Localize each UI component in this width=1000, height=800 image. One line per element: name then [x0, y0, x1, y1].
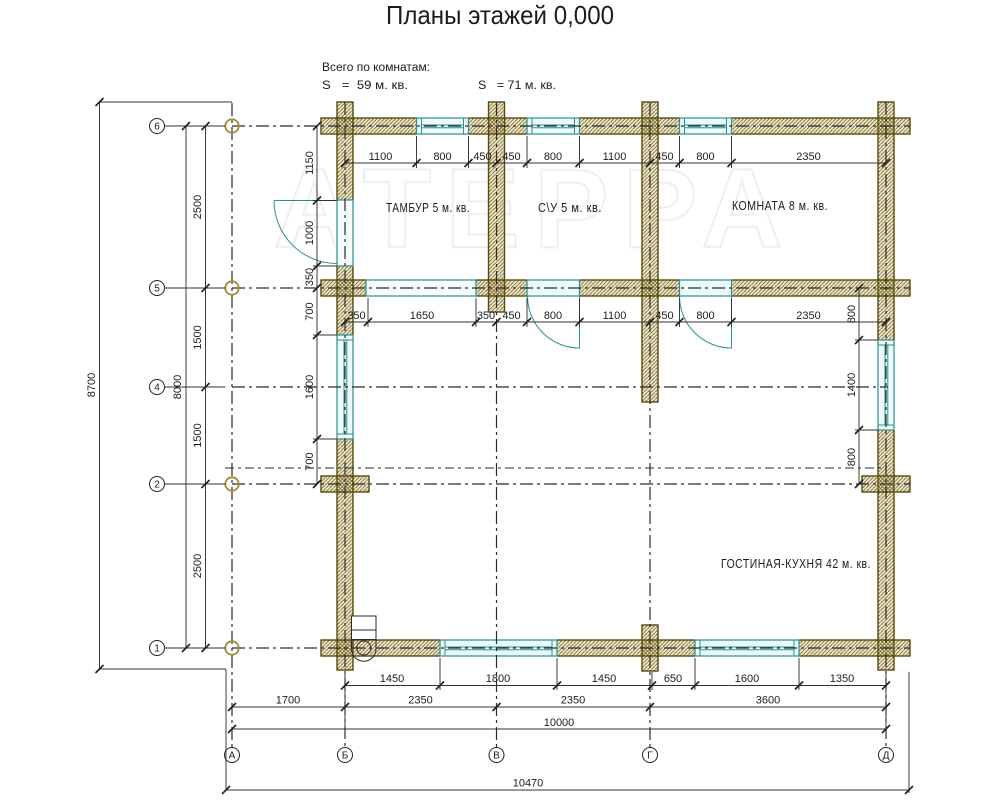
svg-text:Всего по комнатам:: Всего по комнатам: — [322, 62, 430, 74]
svg-text:2500: 2500 — [192, 554, 204, 578]
svg-text:1350: 1350 — [830, 673, 854, 685]
svg-text:8000: 8000 — [172, 375, 184, 399]
svg-text:800: 800 — [433, 151, 451, 163]
svg-text:ТАМБУР 5 м. кв.: ТАМБУР 5 м. кв. — [386, 201, 470, 215]
svg-text:А: А — [229, 751, 236, 762]
svg-text:1500: 1500 — [192, 423, 204, 447]
svg-text:800: 800 — [544, 151, 562, 163]
svg-text:1400: 1400 — [846, 373, 858, 397]
svg-text:800: 800 — [846, 305, 858, 323]
svg-text:2350: 2350 — [561, 695, 585, 707]
svg-text:800: 800 — [696, 310, 714, 322]
svg-text:Г: Г — [647, 751, 653, 762]
svg-text:Б: Б — [342, 751, 349, 762]
svg-text:650: 650 — [664, 673, 682, 685]
svg-text:1600: 1600 — [304, 375, 316, 399]
svg-text:2350: 2350 — [408, 695, 432, 707]
svg-text:2500: 2500 — [192, 195, 204, 219]
svg-text:КОМНАТА 8 м. кв.: КОМНАТА 8 м. кв. — [732, 199, 828, 213]
svg-text:5: 5 — [154, 284, 160, 295]
svg-text:10000: 10000 — [544, 717, 575, 729]
svg-text:4: 4 — [154, 383, 160, 394]
svg-text:700: 700 — [304, 302, 316, 320]
svg-text:1700: 1700 — [276, 695, 300, 707]
svg-text:450: 450 — [655, 151, 673, 163]
svg-text:10470: 10470 — [513, 778, 544, 790]
svg-text:Планы этажей 0,000: Планы этажей 0,000 — [386, 0, 614, 30]
svg-text:1500: 1500 — [192, 325, 204, 349]
svg-text:1450: 1450 — [380, 673, 404, 685]
svg-text:1100: 1100 — [603, 151, 627, 163]
svg-text:S = 59 м. кв.: S = 59 м. кв. — [322, 80, 408, 92]
svg-text:800: 800 — [696, 151, 714, 163]
svg-text:800: 800 — [544, 310, 562, 322]
svg-text:2: 2 — [154, 480, 160, 491]
svg-text:1000: 1000 — [304, 221, 316, 245]
svg-text:2350: 2350 — [796, 310, 820, 322]
svg-text:С\У 5 м. кв.: С\У 5 м. кв. — [538, 201, 602, 215]
svg-text:1600: 1600 — [735, 673, 759, 685]
svg-text:1100: 1100 — [369, 151, 393, 163]
svg-text:450: 450 — [502, 151, 520, 163]
svg-text:3600: 3600 — [756, 695, 780, 707]
svg-text:2350: 2350 — [796, 151, 820, 163]
svg-text:1: 1 — [154, 644, 160, 655]
svg-text:1450: 1450 — [592, 673, 616, 685]
svg-text:700: 700 — [304, 452, 316, 470]
svg-text:8700: 8700 — [86, 373, 98, 397]
svg-text:450: 450 — [502, 310, 520, 322]
svg-text:350: 350 — [477, 310, 495, 322]
svg-text:S = 71 м. кв.: S = 71 м. кв. — [478, 80, 556, 92]
svg-text:350: 350 — [304, 268, 316, 286]
svg-text:В: В — [493, 751, 500, 762]
svg-text:450: 450 — [655, 310, 673, 322]
svg-text:1650: 1650 — [410, 310, 434, 322]
svg-text:1100: 1100 — [603, 310, 627, 322]
svg-text:450: 450 — [473, 151, 491, 163]
svg-text:ГОСТИНАЯ-КУХНЯ 42 м. кв.: ГОСТИНАЯ-КУХНЯ 42 м. кв. — [721, 557, 871, 571]
svg-text:Д: Д — [883, 751, 890, 762]
svg-text:800: 800 — [846, 448, 858, 466]
svg-text:1800: 1800 — [486, 673, 510, 685]
svg-text:6: 6 — [154, 122, 160, 133]
svg-text:1150: 1150 — [304, 151, 316, 175]
svg-text:350: 350 — [347, 310, 365, 322]
